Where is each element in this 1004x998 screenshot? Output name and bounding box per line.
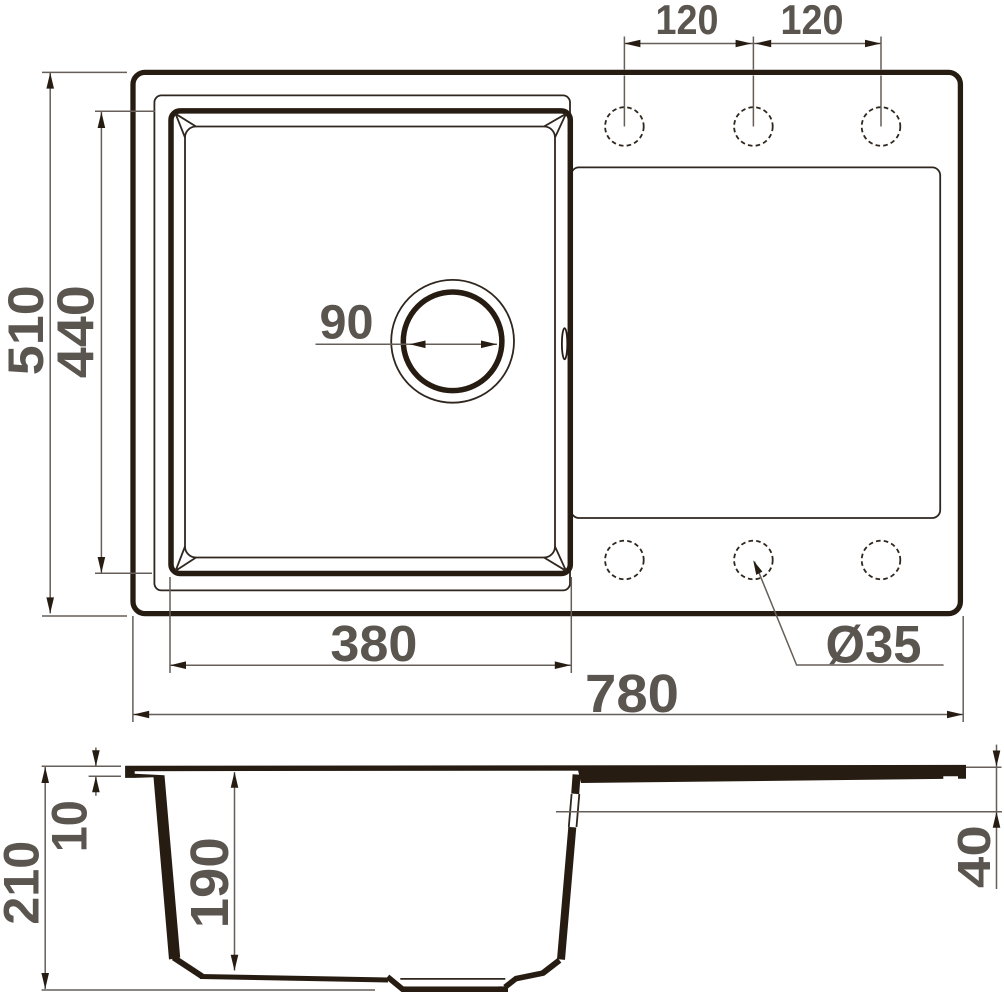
svg-text:120: 120 — [656, 0, 719, 43]
svg-text:780: 780 — [585, 664, 679, 724]
svg-text:40: 40 — [948, 825, 1000, 888]
svg-text:440: 440 — [47, 285, 105, 378]
svg-text:Ø35: Ø35 — [826, 615, 922, 674]
svg-text:120: 120 — [781, 0, 844, 43]
svg-text:190: 190 — [180, 837, 240, 928]
svg-text:90: 90 — [320, 297, 374, 350]
svg-text:380: 380 — [330, 615, 417, 672]
svg-text:510: 510 — [0, 285, 54, 375]
svg-text:210: 210 — [0, 841, 50, 925]
svg-text:10: 10 — [42, 800, 98, 852]
